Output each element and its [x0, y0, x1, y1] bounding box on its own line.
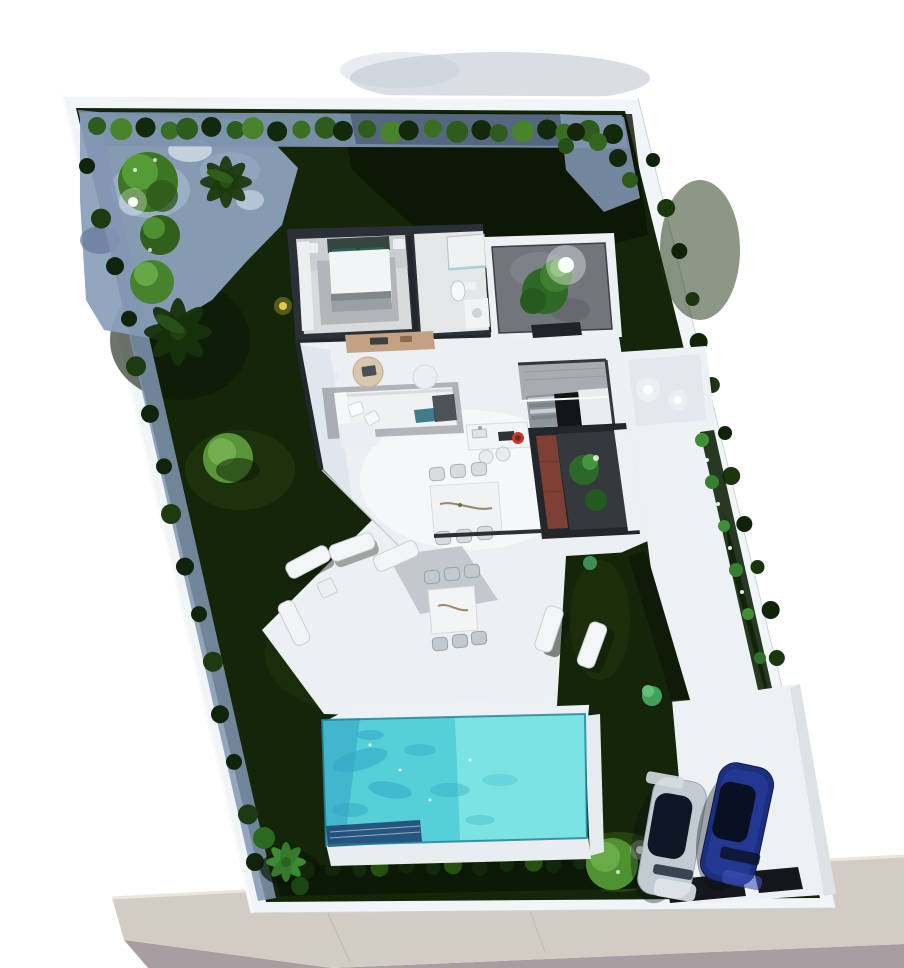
stair-step-2 [529, 404, 557, 406]
nightstand-1 [306, 243, 318, 253]
stairs-white-strip [578, 388, 614, 428]
bush-icon [226, 754, 242, 770]
garden-tree-1-shade [146, 180, 178, 212]
kitchen-stool-2 [496, 447, 510, 461]
dining-chair-1 [429, 467, 445, 481]
bush-icon [686, 292, 700, 306]
se-tree-sparkle-2 [616, 870, 620, 874]
path-plant-4 [729, 563, 743, 577]
bush-icon [646, 153, 660, 167]
bush-icon [201, 117, 221, 137]
path-light-1 [705, 458, 709, 462]
toilet-tank [464, 282, 476, 290]
terrace-light-1 [643, 385, 653, 395]
site-plan-svg [0, 0, 904, 968]
pool-ripple-7 [482, 774, 518, 786]
outdoor-chair-4 [432, 637, 448, 651]
bush-icon [751, 560, 765, 574]
kitchen-red-pot-inner [515, 435, 521, 441]
bush-icon [191, 606, 207, 622]
bush-icon [106, 257, 124, 275]
sideboard-item-1 [370, 337, 388, 345]
pool-ripple-4 [404, 744, 436, 756]
patio-spotlight [558, 257, 574, 273]
pool-sparkle-2 [399, 769, 402, 772]
kitchen-sink [472, 429, 487, 438]
terrace-light-2 [674, 396, 682, 404]
bush-icon [242, 117, 264, 139]
outdoor-chair-3 [464, 564, 480, 578]
pool-ripple-3 [332, 803, 368, 817]
bush-icon [762, 601, 780, 619]
bush-icon [176, 118, 198, 140]
bush-icon [141, 405, 159, 423]
bush-icon [671, 243, 687, 259]
bush-icon [79, 158, 95, 174]
bush-icon [512, 120, 534, 142]
ne-bush-5 [558, 138, 574, 154]
nightstand-2 [393, 239, 405, 249]
villa-site-plan [0, 0, 904, 968]
sw-palm-center [281, 857, 291, 867]
inner-courtyard-plant-2 [585, 489, 607, 511]
small-plant-north [583, 556, 597, 570]
sideboard-item-2 [400, 336, 412, 342]
bush-icon [358, 120, 376, 138]
bush-icon [292, 121, 310, 139]
bush-icon [490, 124, 508, 142]
bush-icon [126, 356, 146, 376]
bush-icon [736, 516, 752, 532]
bush-icon [121, 311, 137, 327]
pool-ripple-5 [430, 783, 470, 797]
outdoor-chair-5 [452, 634, 468, 648]
garden-light-rock-core [128, 197, 138, 207]
bush-icon [424, 120, 442, 138]
tree-sparkle-3 [148, 248, 152, 252]
path-light-3 [728, 546, 732, 550]
sofa-chaise [338, 422, 377, 448]
mint-plant-highlight [642, 685, 654, 697]
ne-bush-3 [609, 149, 627, 167]
pool-ripple-6 [356, 730, 384, 740]
sw-shrub-2 [291, 877, 309, 895]
bush-icon [333, 121, 353, 141]
bush-icon [718, 426, 732, 440]
outdoor-chair-2 [444, 567, 460, 581]
bush-icon [203, 652, 223, 672]
dining-decor-leaf [458, 503, 462, 507]
tree-sparkle-1 [133, 168, 137, 172]
path-plant-5 [742, 608, 754, 620]
pool-sparkle-3 [429, 799, 432, 802]
floor-lamp [333, 373, 339, 379]
inner-courtyard-light [593, 455, 599, 461]
bush-icon [110, 118, 132, 140]
exterior-tree-shadow-2 [340, 52, 460, 88]
garden-tree-3-highlight [134, 262, 158, 286]
outdoor-chair-1 [424, 570, 440, 584]
path-plant-2 [705, 475, 719, 489]
pool-ripple-8 [465, 815, 495, 825]
sofa-teal-cushion [414, 408, 436, 423]
coffee-table-tray [361, 365, 376, 377]
bush-icon [238, 804, 258, 824]
bush-icon [211, 705, 229, 723]
tree-sparkle-2 [153, 158, 157, 162]
path-light-4 [740, 590, 744, 594]
garden-tree-2-highlight [143, 217, 165, 239]
garden-light-yellow-core [279, 302, 287, 310]
bush-icon [161, 504, 181, 524]
bush-icon [315, 117, 337, 139]
pool-sparkle-1 [369, 744, 372, 747]
patio-tree-lower [520, 288, 546, 314]
bush-icon [176, 558, 194, 576]
bush-icon [769, 650, 785, 666]
stair-step-4 [531, 416, 559, 418]
bush-icon [227, 121, 245, 139]
ne-bush-1 [567, 123, 585, 141]
bush-icon [471, 120, 491, 140]
bush-icon [399, 120, 419, 140]
bush-icon [267, 121, 287, 141]
path-plant-6 [754, 652, 766, 664]
bush-icon [91, 209, 111, 229]
outdoor-chair-6 [471, 631, 487, 645]
bush-icon [446, 121, 468, 143]
sw-shrub-1 [253, 827, 275, 849]
lawn-tree-west-shadow [216, 458, 260, 482]
dining-chair-4 [435, 531, 451, 545]
bush-icon [537, 119, 557, 139]
bush-icon [657, 199, 675, 217]
shower-tray [447, 234, 486, 270]
stair-step-3 [530, 410, 558, 412]
bush-icon [156, 458, 172, 474]
vanity-basin [472, 308, 482, 318]
pool-sparkle-4 [469, 759, 472, 762]
bush-icon [88, 117, 106, 135]
bush-icon [136, 117, 156, 137]
dining-chair-2 [450, 464, 466, 478]
ne-bush-4 [622, 172, 638, 188]
bush-icon [161, 122, 179, 140]
kitchen-faucet [478, 426, 482, 430]
path-light-2 [716, 502, 720, 506]
path-plant-1 [695, 433, 709, 447]
outdoor-table [428, 586, 478, 634]
ne-bush-2 [589, 133, 607, 151]
sofa-dark-throw [432, 394, 457, 422]
path-plant-3 [718, 520, 730, 532]
pouf-table [413, 365, 437, 389]
bush-icon [353, 863, 367, 877]
dining-chair-3 [471, 462, 487, 476]
